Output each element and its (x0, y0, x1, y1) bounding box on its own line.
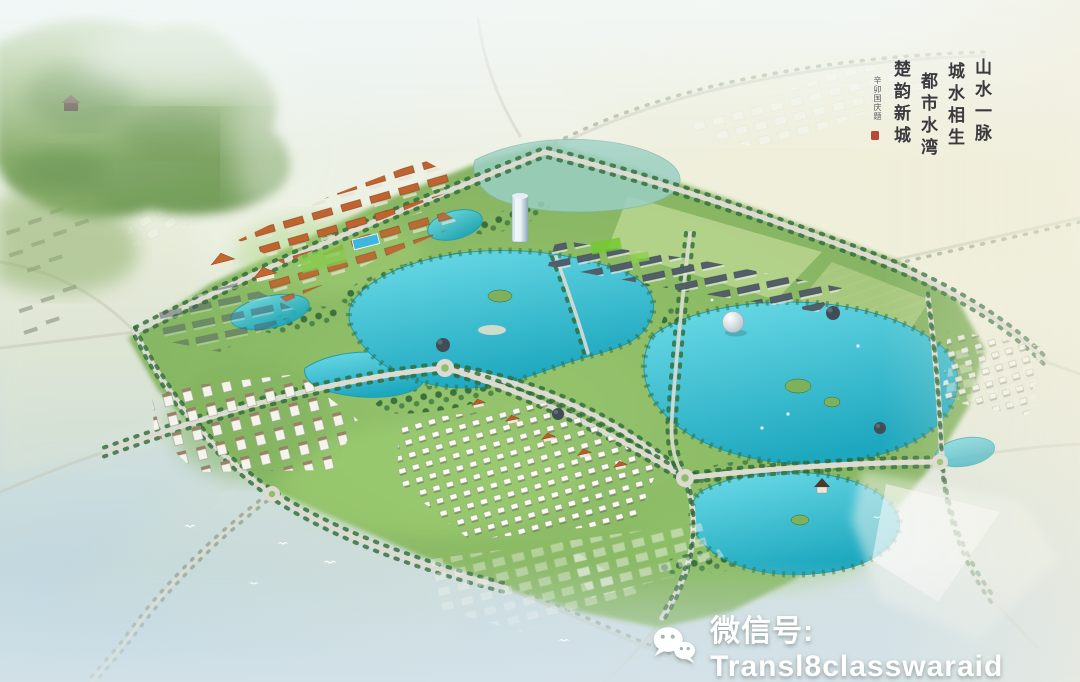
beach-plaza (478, 325, 506, 335)
glass-tower (512, 193, 528, 242)
wechat-watermark: 微信号: Transl8classwaraid (650, 606, 1080, 682)
watermark-text: 微信号: Transl8classwaraid (710, 606, 1080, 682)
calligraphy-line-3: 都市水湾 (913, 46, 940, 266)
signature-text: 辛卯国庆题 (873, 76, 882, 121)
calligraphy-inscription: 山水一脉 城水相生 都市水湾 楚韵新城 辛卯国庆题 (868, 46, 994, 266)
red-seal-icon (871, 131, 879, 140)
wechat-icon (650, 622, 699, 668)
masterplan-rendering: 山水一脉 城水相生 都市水湾 楚韵新城 辛卯国庆题 (0, 0, 1080, 682)
calligraphy-line-1: 山水一脉 (967, 46, 994, 266)
calligraphy-signature: 辛卯国庆题 (868, 46, 886, 266)
calligraphy-line-4: 楚韵新城 (886, 46, 913, 266)
roundabout (676, 469, 694, 487)
roundabout (436, 359, 454, 377)
calligraphy-line-2: 城水相生 (940, 46, 967, 266)
roundabout (264, 486, 280, 502)
